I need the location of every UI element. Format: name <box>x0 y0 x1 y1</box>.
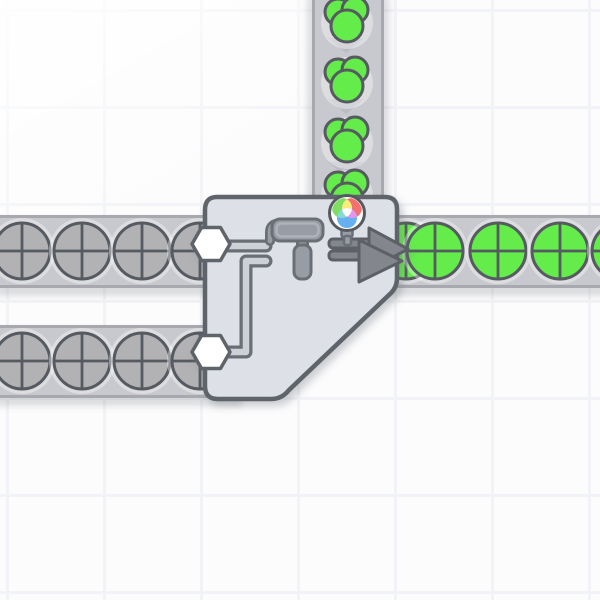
item-uncolored-circle <box>109 218 175 284</box>
item-uncolored-circle <box>109 328 175 394</box>
painter-building[interactable] <box>192 196 408 400</box>
belt-edge <box>312 0 315 200</box>
item-green-circle <box>402 218 468 284</box>
item-uncolored-circle <box>49 218 115 284</box>
item-green-circle <box>527 218 593 284</box>
game-canvas <box>0 0 600 600</box>
item-green-circle <box>465 218 531 284</box>
item-uncolored-circle <box>49 328 115 394</box>
input-port-hexagon <box>192 228 230 261</box>
belt-edge <box>381 0 384 200</box>
item-green-color <box>321 57 373 109</box>
input-port-hexagon <box>192 336 230 369</box>
item-green-color <box>321 117 373 169</box>
belt-edge <box>0 395 240 398</box>
factory-viewport[interactable] <box>0 0 600 600</box>
